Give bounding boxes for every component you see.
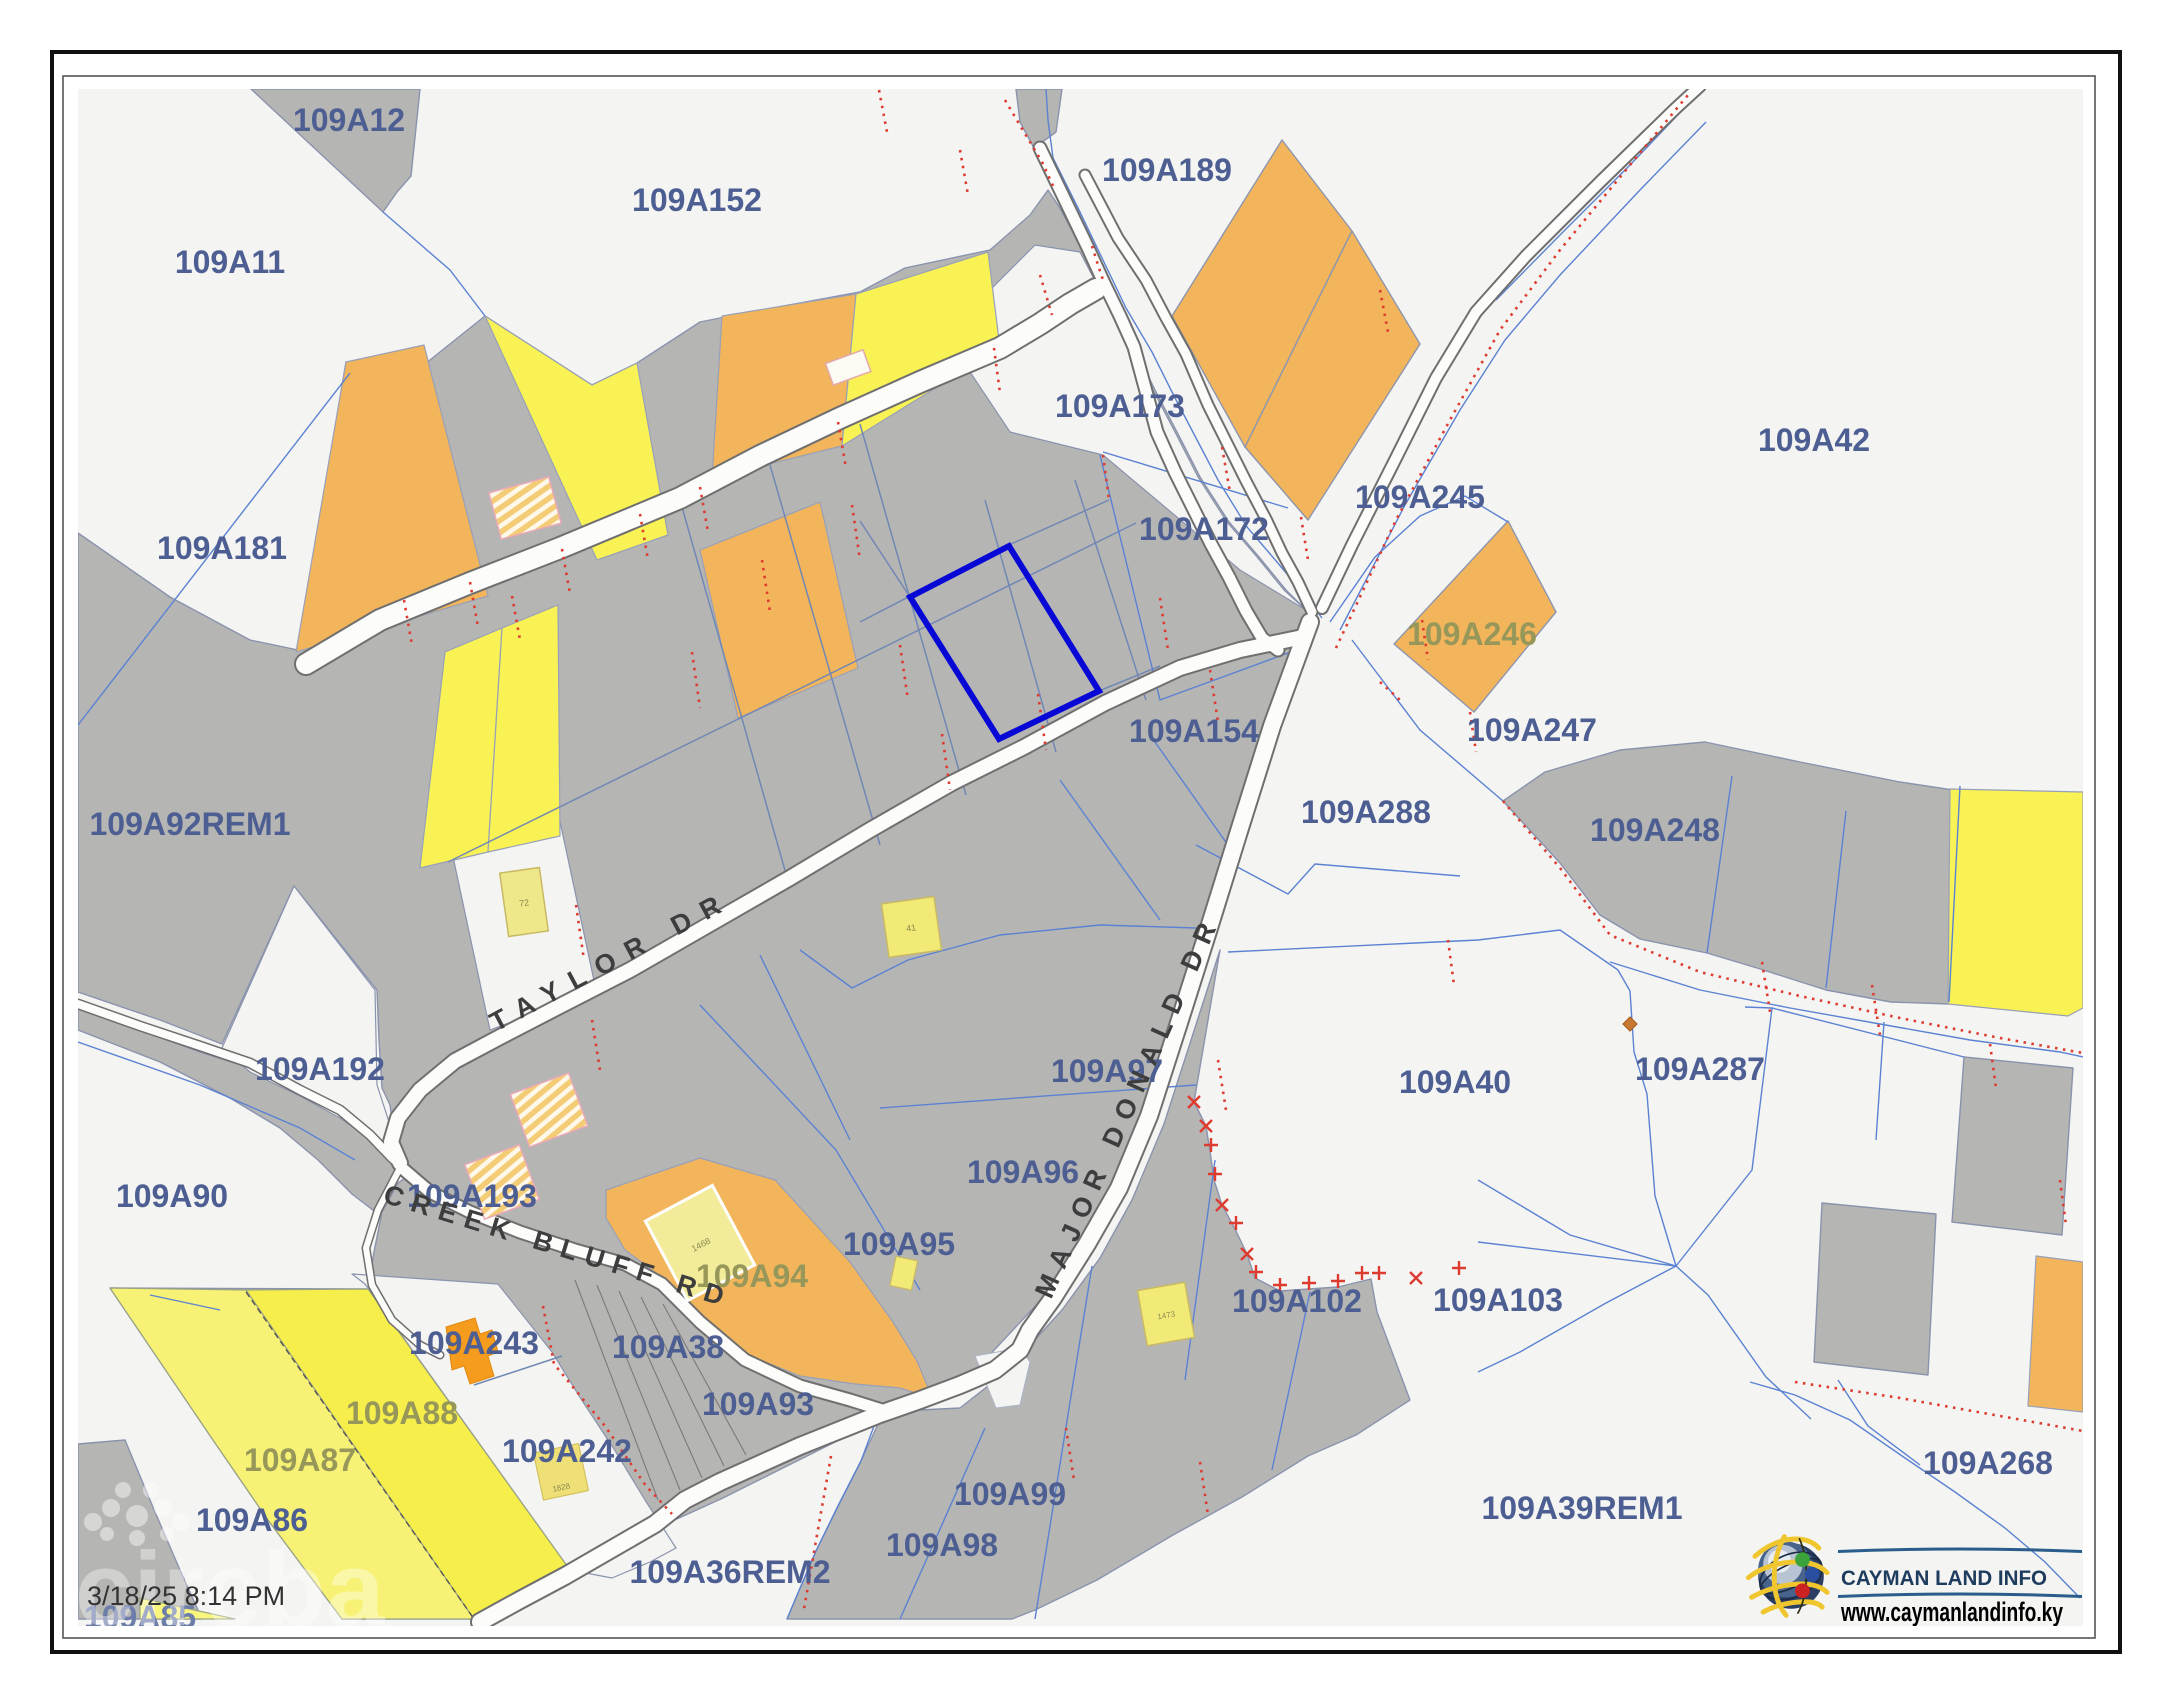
svg-text:109A192: 109A192 [255,1051,385,1087]
svg-text:109A154: 109A154 [1129,713,1259,749]
svg-text:109A242: 109A242 [502,1433,632,1469]
svg-text:109A95: 109A95 [843,1226,955,1262]
svg-text:109A103: 109A103 [1433,1282,1563,1318]
svg-text:109A102: 109A102 [1232,1283,1362,1319]
svg-text:109A12: 109A12 [293,102,405,138]
svg-text:109A92REM1: 109A92REM1 [90,806,291,842]
svg-text:41: 41 [905,922,916,933]
svg-text:109A87: 109A87 [244,1442,356,1478]
svg-text:109A243: 109A243 [409,1325,539,1361]
svg-text:109A88: 109A88 [346,1395,458,1431]
svg-text:109A98: 109A98 [886,1527,998,1563]
svg-text:109A36REM2: 109A36REM2 [630,1554,831,1590]
svg-text:109A90: 109A90 [116,1178,228,1214]
svg-text:109A96: 109A96 [967,1154,1079,1190]
svg-text:109A152: 109A152 [632,182,762,218]
svg-text:109A11: 109A11 [175,244,285,280]
svg-text:CAYMAN LAND INFO: CAYMAN LAND INFO [1841,1567,2047,1590]
svg-text:109A287: 109A287 [1635,1051,1765,1087]
svg-text:109A189: 109A189 [1102,152,1232,188]
svg-text:109A173: 109A173 [1055,388,1185,424]
svg-text:109A40: 109A40 [1399,1064,1511,1100]
svg-text:109A248: 109A248 [1590,812,1720,848]
svg-text:109A246: 109A246 [1407,616,1537,652]
svg-text:109A99: 109A99 [954,1476,1066,1512]
svg-text:3/18/25 8:14 PM: 3/18/25 8:14 PM [87,1581,285,1611]
svg-text:109A245: 109A245 [1355,479,1485,515]
svg-text:109A172: 109A172 [1139,511,1269,547]
svg-text:109A247: 109A247 [1467,712,1597,748]
svg-text:109A39REM1: 109A39REM1 [1482,1490,1683,1526]
svg-text:109A181: 109A181 [157,530,287,566]
svg-text:109A93: 109A93 [702,1386,814,1422]
svg-text:109A268: 109A268 [1923,1445,2053,1481]
svg-text:109A38: 109A38 [612,1329,724,1365]
svg-text:72: 72 [518,897,529,908]
svg-text:www.caymanlandinfo.ky: www.caymanlandinfo.ky [1840,1597,2063,1627]
svg-text:109A288: 109A288 [1301,794,1431,830]
svg-text:109A42: 109A42 [1758,422,1870,458]
